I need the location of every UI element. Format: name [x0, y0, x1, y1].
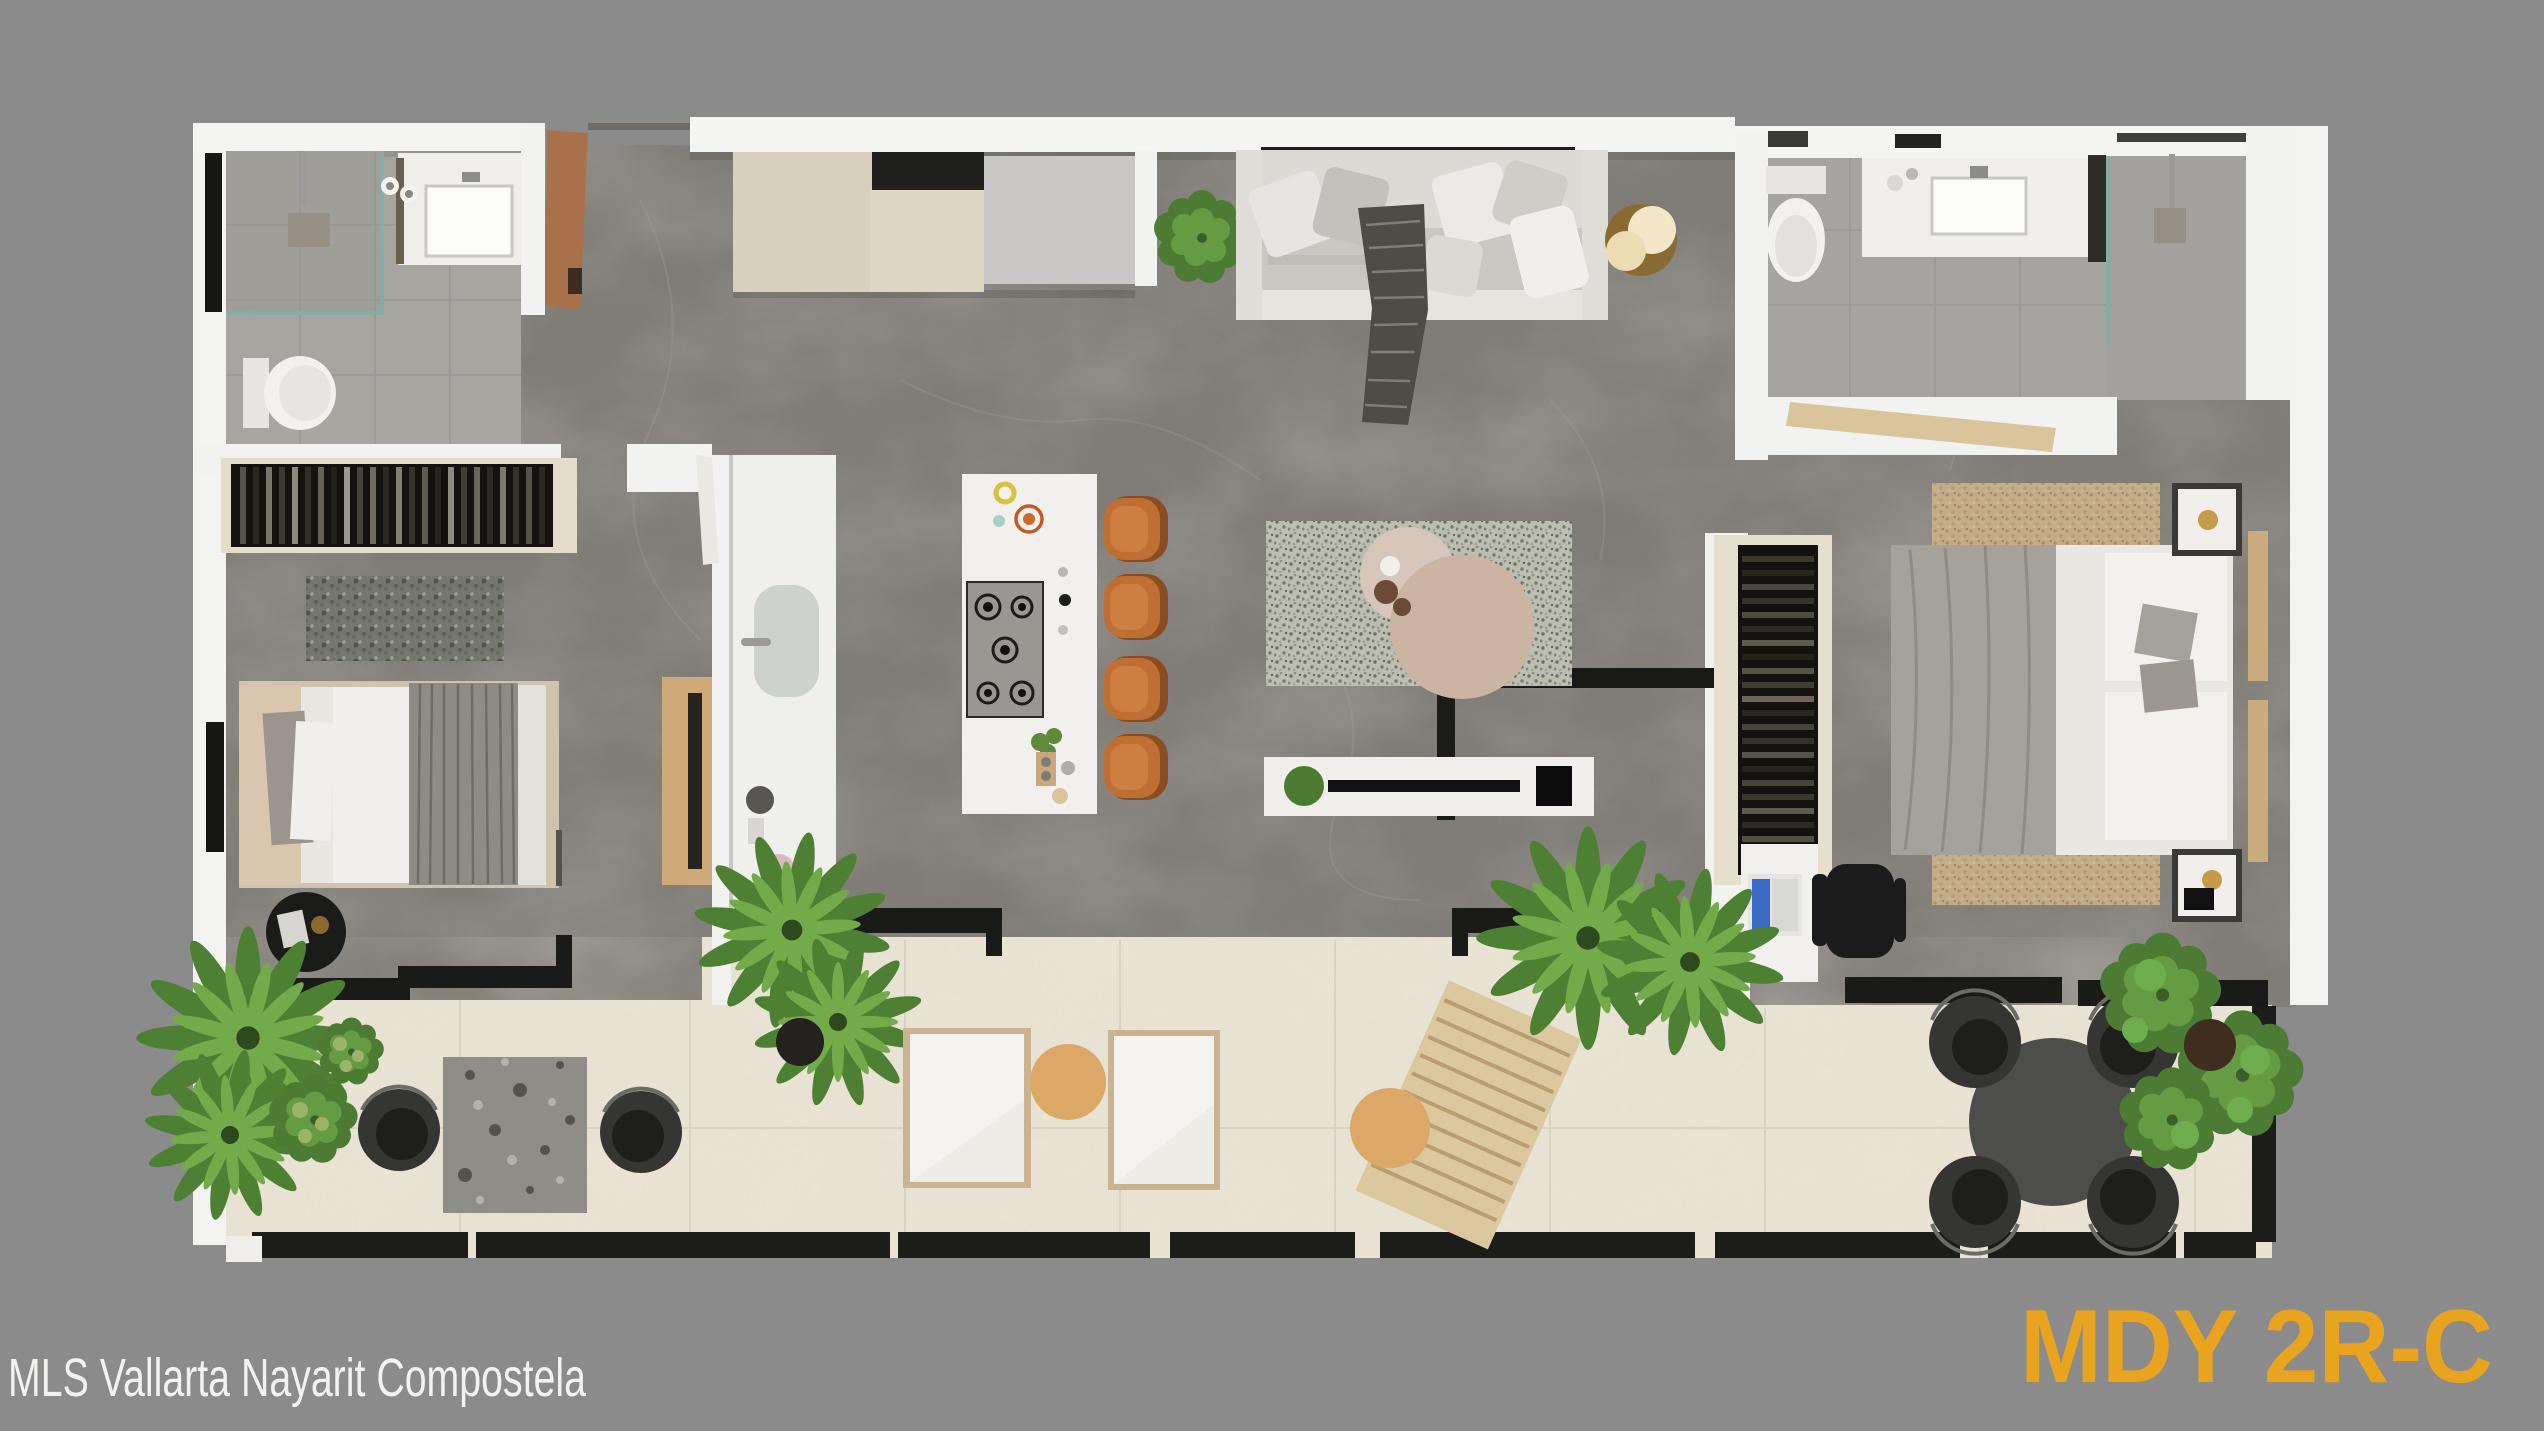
svg-text:MLS Vallarta Nayarit Compostel: MLS Vallarta Nayarit Compostela — [8, 1348, 587, 1408]
svg-text:MDY 2R-C: MDY 2R-C — [2020, 1289, 2493, 1405]
